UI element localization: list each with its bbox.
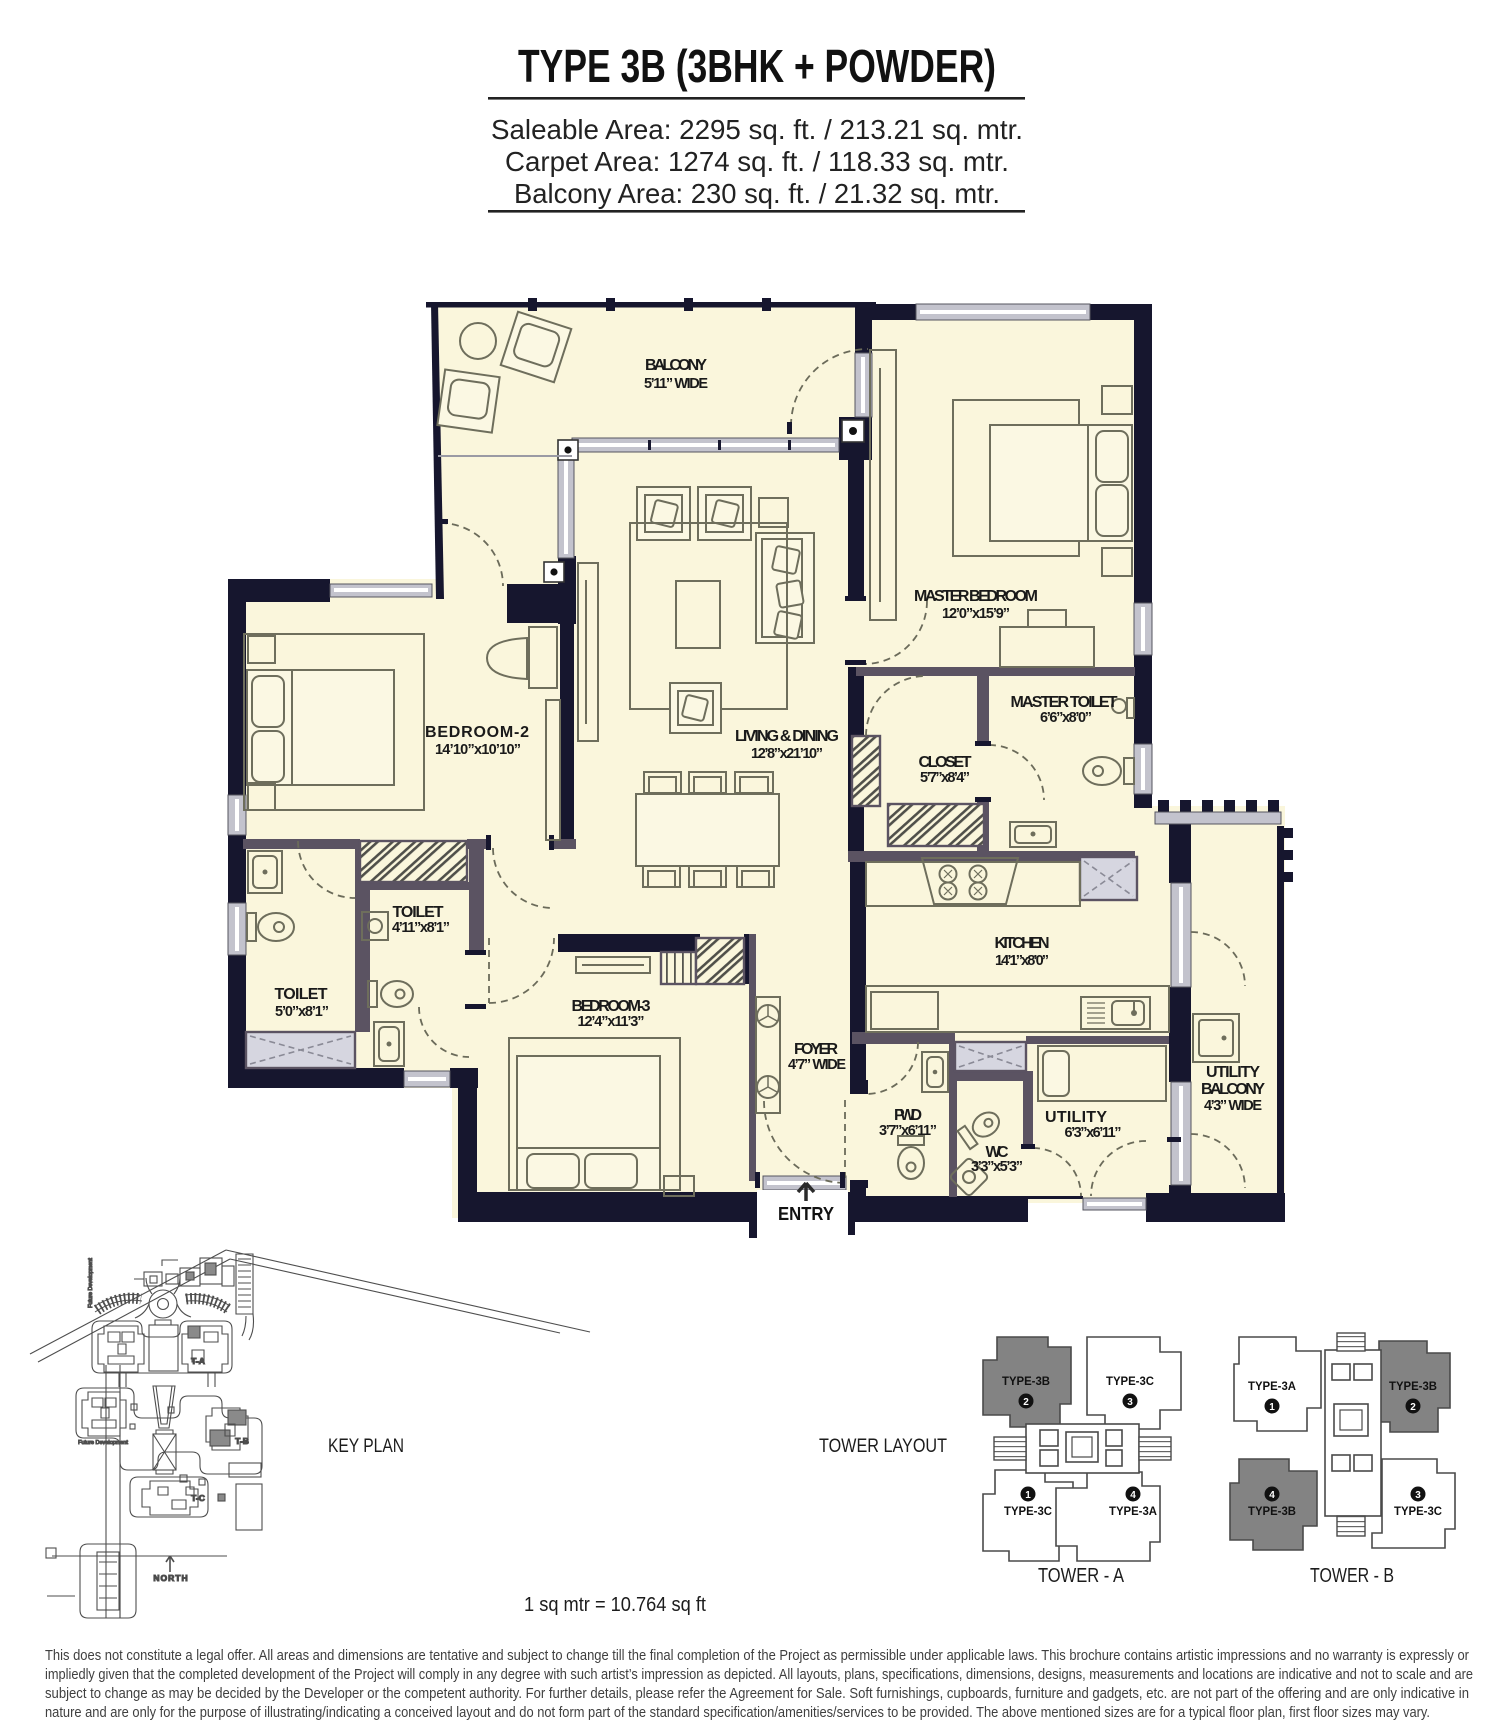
svg-text:TOWER - A: TOWER - A xyxy=(1038,1565,1125,1587)
svg-text:LIVING & DINING: LIVING & DINING xyxy=(735,728,839,745)
svg-text:impliedly given that the compl: impliedly given that the completed devel… xyxy=(45,1666,1473,1683)
svg-text:6’3”x6’11”: 6’3”x6’11” xyxy=(1065,1125,1122,1141)
svg-text:This does not constitute a leg: This does not constitute a legal offer. … xyxy=(45,1647,1469,1664)
svg-text:TYPE-3B: TYPE-3B xyxy=(1248,1506,1296,1518)
svg-text:FOYER: FOYER xyxy=(794,1041,838,1058)
svg-text:4’11”x8’1”: 4’11”x8’1” xyxy=(392,920,450,936)
svg-text:CLOSET: CLOSET xyxy=(919,754,972,771)
svg-text:5’11” WIDE: 5’11” WIDE xyxy=(644,376,708,392)
svg-text:TYPE 3B (3BHK + POWDER): TYPE 3B (3BHK + POWDER) xyxy=(518,40,996,92)
svg-text:6’6”x8’0”: 6’6”x8’0” xyxy=(1040,710,1092,726)
svg-text:MASTER BEDROOM: MASTER BEDROOM xyxy=(914,588,1038,605)
svg-text:T-C: T-C xyxy=(191,1493,205,1503)
svg-text:2: 2 xyxy=(1410,1402,1416,1413)
svg-text:5’0”x8’1”: 5’0”x8’1” xyxy=(275,1004,329,1020)
svg-text:Saleable Area: 2295 sq. ft. /: Saleable Area: 2295 sq. ft. / 213.21 sq.… xyxy=(491,114,1023,145)
svg-text:4: 4 xyxy=(1130,1490,1136,1501)
svg-text:BEDROOM-3: BEDROOM-3 xyxy=(572,998,651,1015)
svg-text:nature and are only for the pu: nature and are only for the purpose of i… xyxy=(45,1704,1430,1721)
svg-text:14’1”x8’0”: 14’1”x8’0” xyxy=(995,953,1049,969)
svg-text:KITCHEN: KITCHEN xyxy=(995,935,1050,952)
svg-text:ENTRY: ENTRY xyxy=(778,1204,834,1224)
svg-text:1 sq mtr = 10.764 sq ft: 1 sq mtr = 10.764 sq ft xyxy=(524,1594,706,1616)
svg-text:TOILET: TOILET xyxy=(393,904,444,921)
svg-text:12’8”x21’10”: 12’8”x21’10” xyxy=(751,746,823,762)
svg-text:TYPE-3C: TYPE-3C xyxy=(1106,1376,1154,1388)
svg-text:TOILET: TOILET xyxy=(275,986,328,1003)
svg-text:4’7” WIDE: 4’7” WIDE xyxy=(788,1057,846,1073)
svg-text:T-B: T-B xyxy=(235,1436,249,1446)
svg-text:14’10”x10’10”: 14’10”x10’10” xyxy=(435,742,521,758)
svg-text:TYPE-3A: TYPE-3A xyxy=(1109,1506,1157,1518)
svg-text:4’3” WIDE: 4’3” WIDE xyxy=(1204,1098,1262,1114)
svg-text:5’7”x8’4”: 5’7”x8’4” xyxy=(920,770,970,786)
svg-text:BALCONY: BALCONY xyxy=(1201,1081,1265,1098)
svg-text:Carpet Area: 1274 sq. ft. / 11: Carpet Area: 1274 sq. ft. / 118.33 sq. m… xyxy=(505,146,1009,177)
svg-text:TYPE-3B: TYPE-3B xyxy=(1389,1381,1437,1393)
svg-text:KEY PLAN: KEY PLAN xyxy=(328,1436,404,1457)
svg-text:UTILITY: UTILITY xyxy=(1206,1064,1260,1081)
svg-text:BALCONY: BALCONY xyxy=(645,357,707,374)
svg-text:TYPE-3C: TYPE-3C xyxy=(1394,1506,1442,1518)
svg-text:1: 1 xyxy=(1269,1402,1275,1413)
svg-text:3’7”x6’11”: 3’7”x6’11” xyxy=(879,1123,937,1139)
svg-text:UTILITY: UTILITY xyxy=(1045,1109,1107,1126)
svg-text:Future Development: Future Development xyxy=(88,1258,94,1308)
svg-text:TYPE-3C: TYPE-3C xyxy=(1004,1506,1052,1518)
svg-text:TYPE-3A: TYPE-3A xyxy=(1248,1381,1296,1393)
svg-text:3’3”x5’3”: 3’3”x5’3” xyxy=(971,1159,1023,1175)
svg-text:Future Development: Future Development xyxy=(78,1440,128,1446)
svg-text:TYPE-3B: TYPE-3B xyxy=(1002,1376,1050,1388)
svg-text:3: 3 xyxy=(1415,1490,1421,1501)
svg-text:Balcony Area: 230 sq. ft. / 21: Balcony Area: 230 sq. ft. / 21.32 sq. mt… xyxy=(514,178,1000,209)
svg-text:2: 2 xyxy=(1023,1397,1029,1408)
svg-text:BEDROOM-2: BEDROOM-2 xyxy=(425,724,529,741)
svg-text:12’0”x15’9”: 12’0”x15’9” xyxy=(942,606,1010,622)
svg-text:PWD: PWD xyxy=(894,1107,922,1124)
svg-text:3: 3 xyxy=(1127,1397,1133,1408)
svg-text:1: 1 xyxy=(1025,1490,1031,1501)
svg-text:12’4”x11’3”: 12’4”x11’3” xyxy=(578,1014,645,1030)
svg-text:subject to change as may be de: subject to change as may be decided by t… xyxy=(45,1685,1469,1702)
svg-text:MASTER TOILET: MASTER TOILET xyxy=(1011,694,1118,711)
svg-text:TOWER - B: TOWER - B xyxy=(1310,1565,1394,1587)
svg-text:TOWER LAYOUT: TOWER LAYOUT xyxy=(819,1436,947,1457)
svg-text:4: 4 xyxy=(1269,1490,1275,1501)
svg-text:T-A: T-A xyxy=(191,1356,205,1366)
svg-text:NORTH: NORTH xyxy=(153,1573,188,1583)
